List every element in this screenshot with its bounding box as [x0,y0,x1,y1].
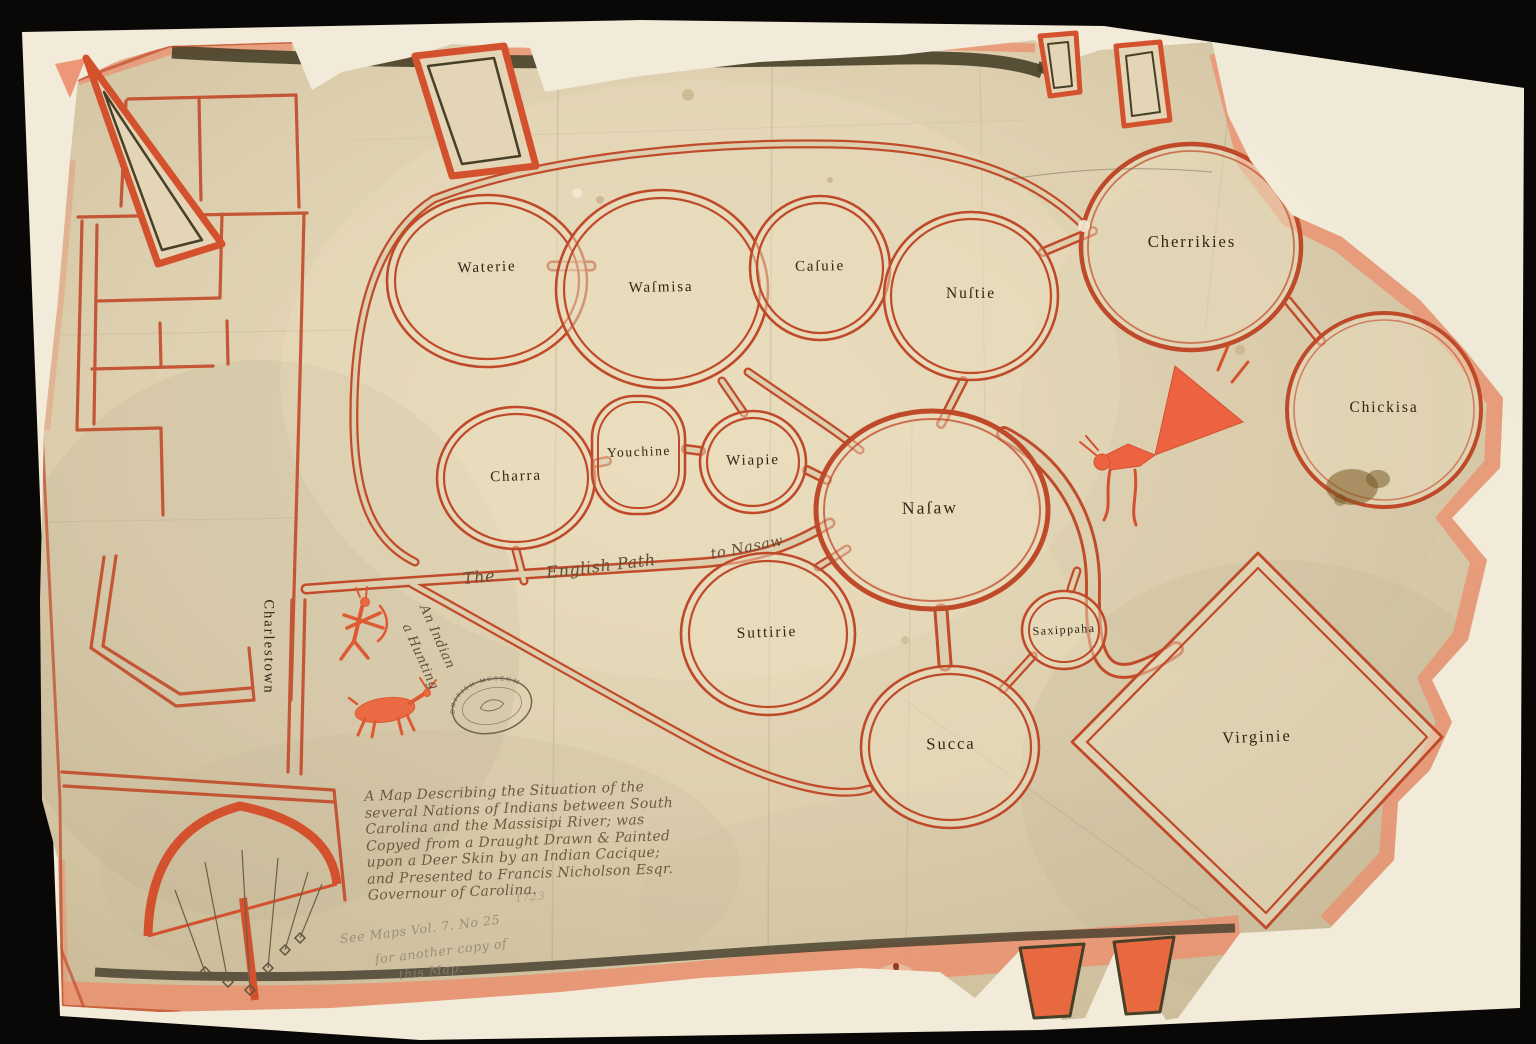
nation-label-charra: Charra [490,468,542,487]
nation-label-cherrikies: Cherrikies [1148,232,1237,252]
deerskin-map-photo: BRITISH MUSEUM Waterie Waſmisa Caſuie Nu… [0,0,1536,1044]
nation-label-chickisa: Chickisa [1349,399,1418,417]
map-artwork: BRITISH MUSEUM [0,0,1536,1044]
nation-label-wasmisa: Waſmisa [628,279,693,297]
nation-label-youchine: Youchine [607,443,672,461]
nation-label-suttirie: Suttirie [736,623,797,643]
path-label-the: The [462,566,496,588]
nation-label-succa: Succa [926,734,976,755]
map-cartouche: A Map Describing the Situation of the se… [364,777,698,904]
place-label-charlestown: Charlestown [260,599,277,694]
year-mark: 1723 [514,889,545,905]
nation-label-wiapie: Wiapie [726,452,780,470]
nation-label-nustie: Nuſtie [946,285,996,303]
nation-label-waterie: Waterie [457,258,516,277]
nation-label-virginie: Virginie [1222,726,1292,748]
nation-label-nasaw: Naſaw [902,497,959,519]
nation-label-casuie: Caſuie [795,258,845,276]
